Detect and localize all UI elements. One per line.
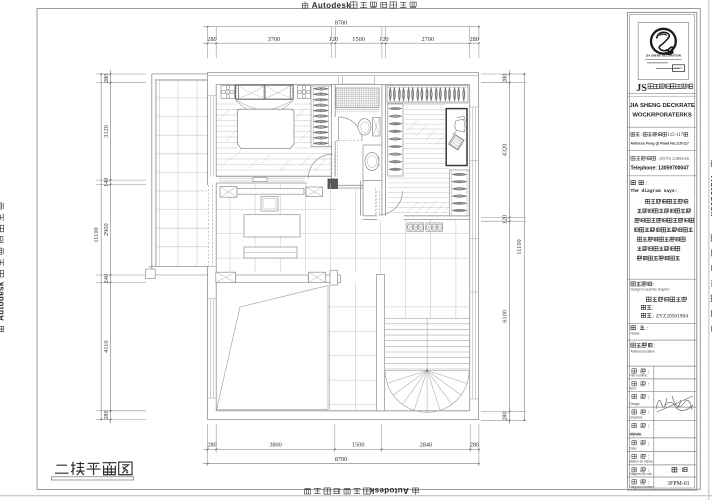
svg-text:11100: 11100	[93, 227, 100, 242]
svg-text::: :	[648, 441, 650, 447]
svg-text:240: 240	[103, 274, 110, 283]
svg-text:280: 280	[469, 36, 478, 43]
svg-text:Part number:: Part number:	[630, 374, 649, 378]
svg-text:3800: 3800	[269, 442, 282, 449]
svg-text:140: 140	[103, 178, 110, 187]
svg-text:Name:: Name:	[631, 332, 641, 336]
svg-text::: :	[648, 395, 650, 401]
svg-text:280: 280	[207, 442, 216, 449]
svg-text:2700: 2700	[421, 36, 434, 43]
svg-text:Autodesk: Autodesk	[0, 281, 6, 321]
svg-text:The diagram says:: The diagram says:	[631, 188, 678, 194]
svg-text:Design:: Design:	[630, 402, 641, 406]
svg-text:280: 280	[470, 442, 479, 449]
svg-text::: :	[648, 424, 650, 430]
svg-text:2840: 2840	[420, 442, 433, 449]
svg-text::: :	[652, 306, 653, 312]
svg-text:120: 120	[501, 215, 508, 224]
svg-text:JS: JS	[636, 83, 647, 94]
svg-text:Item:: Item:	[630, 387, 637, 391]
svg-text:JIA SHENG DECKRATE: JIA SHENG DECKRATE	[629, 103, 695, 109]
svg-text:Address location: Address location	[631, 349, 656, 353]
svg-text:11100: 11100	[516, 239, 523, 254]
svg-text:280: 280	[501, 411, 508, 420]
svg-text:8700: 8700	[335, 456, 348, 463]
svg-text:280: 280	[103, 410, 110, 419]
svg-text:1500: 1500	[352, 36, 365, 43]
svg-text:Telephone: 13059700047: Telephone: 13059700047	[631, 165, 689, 171]
svg-text:4110: 4110	[103, 340, 110, 352]
svg-text::: :	[646, 181, 648, 187]
svg-text::: :	[654, 343, 655, 349]
svg-text:4320: 4320	[501, 144, 508, 157]
svg-text:6100: 6100	[501, 310, 508, 323]
svg-text:Address Feng Qi Road No.115-11: Address Feng Qi Road No.115-117	[631, 141, 689, 145]
svg-text:2900: 2900	[103, 223, 110, 236]
svg-text:Diagram do not:: Diagram do not:	[630, 472, 653, 476]
svg-text:115-117: 115-117	[668, 133, 684, 138]
svg-text:(0570) 23893/68: (0570) 23893/68	[660, 156, 690, 161]
svg-text::: :	[647, 326, 648, 332]
svg-text:120: 120	[329, 36, 338, 43]
svg-text:280: 280	[501, 74, 508, 83]
svg-text:: ZYZ20501904: : ZYZ20501904	[653, 314, 688, 320]
svg-text::: :	[648, 382, 650, 388]
svg-text:Design to seal the chapter:: Design to seal the chapter:	[631, 288, 670, 292]
svg-text:Date:: Date:	[630, 446, 638, 450]
svg-text:280: 280	[103, 74, 110, 83]
svg-text:Button for Name:: Button for Name:	[630, 460, 654, 464]
svg-text:JIA SHENG DECORATION: JIA SHENG DECORATION	[646, 53, 681, 57]
svg-text:3120: 3120	[103, 125, 110, 138]
svg-text:WOCKRPORATERKS: WOCKRPORATERKS	[632, 113, 692, 119]
svg-text:120: 120	[379, 36, 388, 43]
svg-text:Diagram number:: Diagram number:	[630, 485, 655, 489]
svg-text:Autodesk: Autodesk	[369, 486, 408, 495]
svg-text:Autodesk: Autodesk	[312, 1, 351, 10]
svg-text:1500: 1500	[352, 442, 365, 449]
svg-text:3FPM-01: 3FPM-01	[667, 481, 689, 487]
svg-text::: :	[648, 410, 650, 416]
svg-text:officially:: officially:	[630, 432, 642, 436]
svg-text:280: 280	[207, 36, 216, 43]
svg-text:3700: 3700	[268, 36, 281, 43]
svg-text:8700: 8700	[335, 19, 348, 26]
svg-text:Graphics:: Graphics:	[630, 416, 644, 420]
svg-text::: :	[641, 133, 642, 138]
